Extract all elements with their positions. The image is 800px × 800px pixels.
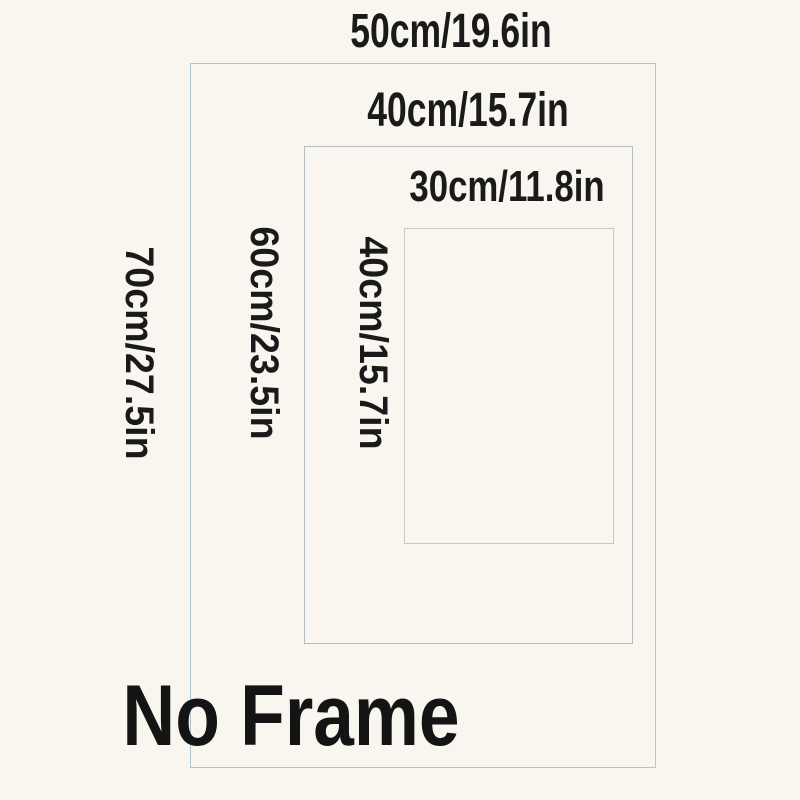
outer-height-label: 70cm/27.5in (119, 246, 159, 459)
middle-width-label: 40cm/15.7in (367, 87, 568, 135)
size-diagram: 50cm/19.6in 40cm/15.7in 30cm/11.8in 70cm… (0, 0, 800, 800)
inner-height-label: 40cm/15.7in (353, 236, 393, 449)
inner-size-rectangle (404, 228, 614, 544)
outer-width-label: 50cm/19.6in (350, 8, 551, 56)
middle-height-label: 60cm/23.5in (244, 226, 284, 439)
no-frame-caption: No Frame (122, 673, 459, 759)
inner-width-label: 30cm/11.8in (409, 165, 604, 209)
